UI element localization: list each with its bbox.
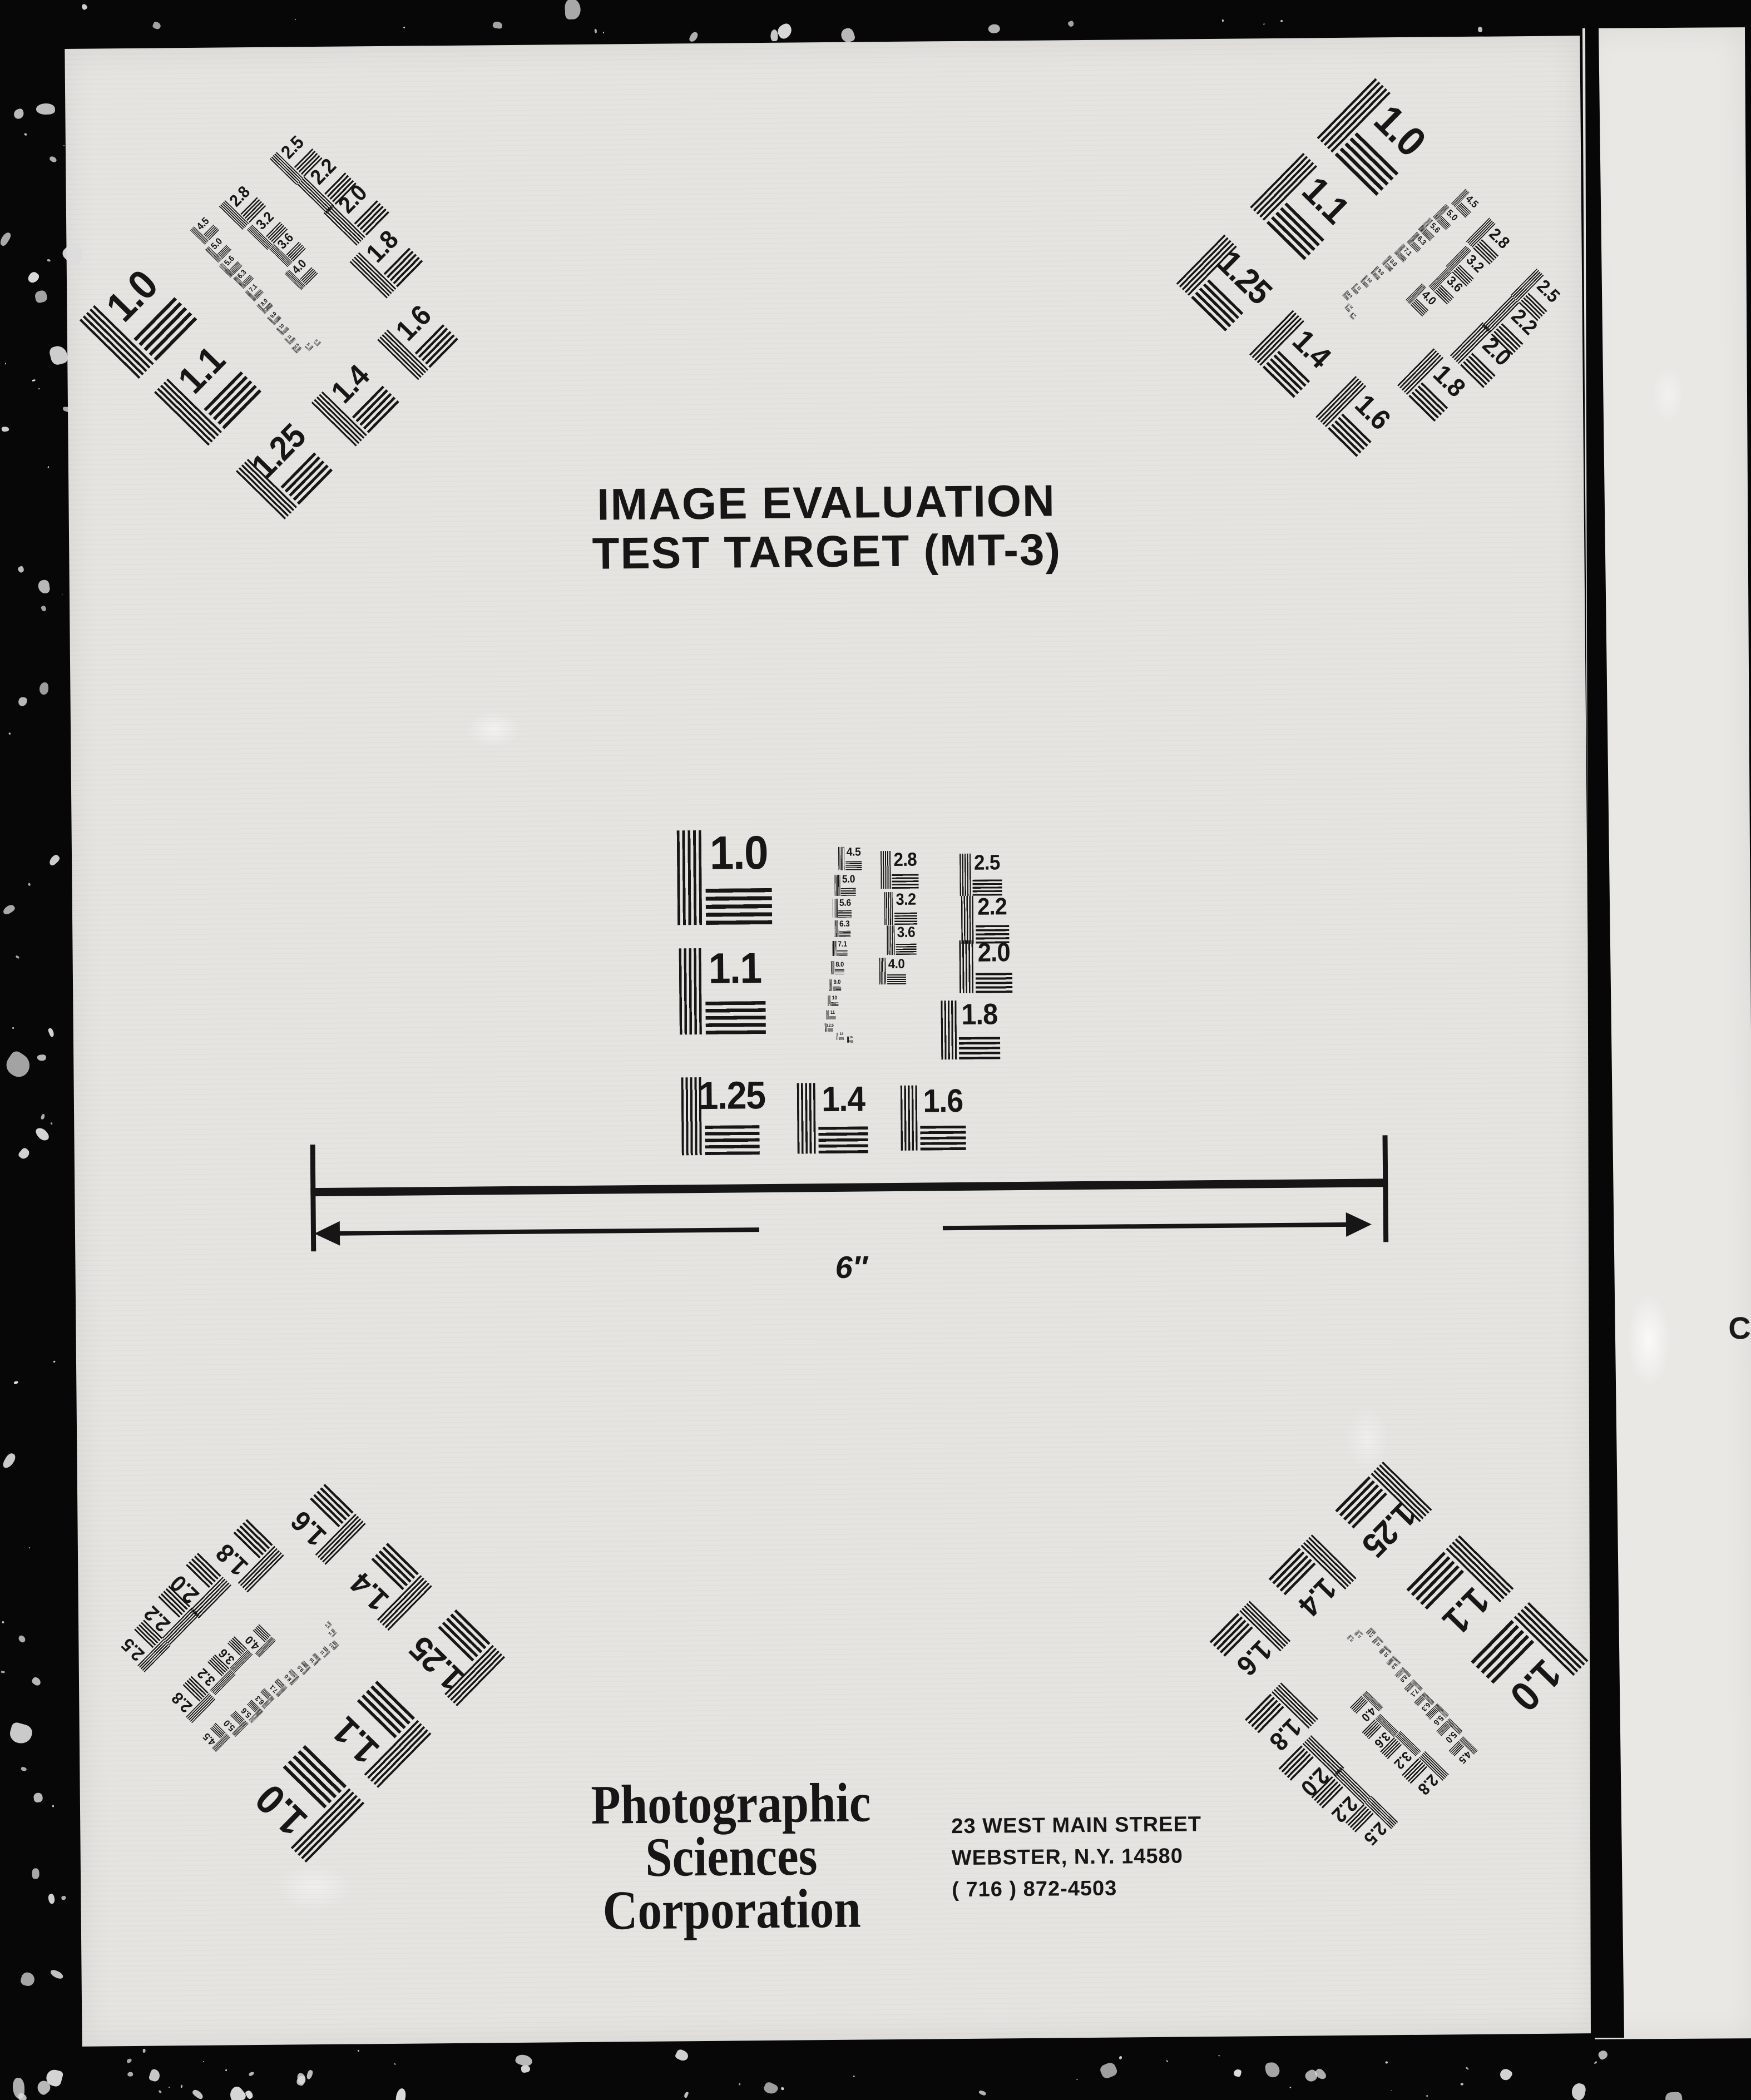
resolution-number: 5.0 — [841, 874, 855, 887]
resolution-element-11: 11 — [1372, 1636, 1383, 1648]
vertical-bars-icon — [797, 1083, 816, 1153]
resolution-number: 9.0 — [833, 979, 841, 986]
horizontal-bars-icon — [975, 973, 1012, 993]
vertical-bars-icon — [834, 920, 838, 937]
horizontal-bars-icon — [920, 1125, 966, 1150]
resolution-element-11: 11 — [284, 333, 296, 345]
dust-speck — [47, 1028, 55, 1038]
dust-speck — [191, 2088, 205, 2100]
dust-speck — [565, 0, 581, 19]
dust-speck — [296, 2074, 306, 2087]
dust-speck — [48, 344, 69, 366]
resolution-element-7.1: 7.1 — [269, 1678, 288, 1697]
dust-speck — [38, 388, 39, 389]
dust-speck — [1099, 2061, 1118, 2080]
resolution-element-10: 10 — [308, 1653, 321, 1666]
resolution-chart-top-right: 1.01.11.251.41.61.82.02.22.52.83.23.64.0… — [1171, 77, 1586, 492]
resolution-element-7.1: 7.1 — [1404, 1680, 1423, 1698]
vertical-bars-icon — [679, 948, 703, 1034]
resolution-number: 1.1 — [705, 946, 764, 998]
dust-speck — [18, 697, 27, 706]
resolution-element-11: 11 — [1351, 283, 1362, 295]
resolution-element-8.0: 8.0 — [283, 1669, 300, 1686]
dust-speck — [780, 2087, 784, 2091]
resolution-element-12.5: 12.5 — [1342, 290, 1353, 301]
dust-speck — [148, 2069, 161, 2083]
dust-speck — [47, 466, 50, 469]
dust-speck — [1, 1671, 6, 1674]
dust-speck — [8, 1721, 33, 1746]
dust-speck — [8, 732, 11, 735]
horizontal-bars-icon — [706, 888, 773, 925]
dust-speck — [248, 2071, 255, 2077]
resolution-element-16: 16 — [1349, 313, 1357, 320]
resolution-element-2.2: 2.2 — [961, 895, 1010, 944]
resolution-element-14: 14 — [305, 343, 314, 351]
resolution-element-1.25: 1.25 — [681, 1077, 760, 1155]
resolution-element-16: 16 — [314, 339, 321, 346]
dust-speck — [1221, 19, 1224, 22]
resolution-element-7.1: 7.1 — [245, 283, 264, 302]
dust-speck — [52, 1805, 54, 1807]
resolution-number: 12.5 — [827, 1023, 833, 1028]
dust-speck — [1218, 2055, 1220, 2057]
dust-speck — [5, 363, 6, 365]
resolution-element-3.2: 3.2 — [884, 892, 918, 925]
dust-speck — [689, 31, 700, 43]
resolution-number: 1.4 — [819, 1081, 867, 1124]
dust-speck — [18, 1147, 31, 1161]
resolution-element-1.4: 1.4 — [1249, 310, 1337, 398]
resolution-element-16: 16 — [847, 1037, 853, 1043]
horizontal-bars-icon — [835, 969, 844, 974]
dust-speck — [41, 1114, 45, 1120]
resolution-number: 11 — [829, 1010, 836, 1016]
vertical-bars-icon — [838, 847, 844, 870]
resolution-element-2.5: 2.5 — [959, 853, 1002, 896]
dust-speck — [20, 1972, 36, 1988]
ruler-length-label: 6″ — [759, 1248, 943, 1286]
dust-speck — [13, 2078, 25, 2099]
resolution-element-4.0: 4.0 — [879, 958, 906, 984]
resolution-element-14: 14 — [1344, 303, 1353, 312]
dust-speck — [48, 853, 62, 866]
resolution-number: 2.8 — [892, 850, 918, 873]
resolution-chart-bottom-left: 1.01.11.251.41.61.82.02.22.52.83.23.64.0… — [95, 1449, 511, 1864]
horizontal-bars-icon — [972, 879, 1002, 895]
resolution-element-14: 14 — [837, 1033, 844, 1040]
resolution-element-9.0: 9.0 — [829, 979, 841, 991]
resolution-element-1.0: 1.0 — [247, 1745, 365, 1863]
logo-line-2: Sciences — [576, 1829, 887, 1884]
dust-speck — [32, 379, 36, 382]
dust-speck — [226, 2084, 248, 2100]
adjacent-page-partial-text: Ca — [1728, 1310, 1751, 1346]
dust-speck — [492, 21, 502, 29]
dust-speck — [31, 1676, 42, 1687]
resolution-element-1.1: 1.1 — [679, 948, 766, 1034]
dust-speck — [521, 2064, 530, 2073]
dust-speck — [603, 32, 604, 33]
vertical-bars-icon — [837, 1033, 838, 1040]
dust-speck — [1303, 2068, 1319, 2084]
resolution-number: 10 — [831, 995, 838, 1002]
dust-speck — [47, 259, 51, 261]
dust-speck — [47, 1894, 56, 1905]
vertical-bars-icon — [901, 1086, 918, 1151]
dust-speck — [33, 1792, 43, 1803]
resolution-element-1.6: 1.6 — [1315, 376, 1397, 457]
vertical-bars-icon — [834, 875, 840, 896]
dust-speck — [1498, 2067, 1513, 2082]
resolution-number: 5.6 — [838, 898, 851, 910]
dust-speck — [126, 2058, 132, 2063]
company-address: 23 WEST MAIN STREET WEBSTER, N.Y. 14580 … — [951, 1808, 1263, 1906]
resolution-element-4.5: 4.5 — [838, 847, 862, 870]
dust-speck — [13, 108, 25, 120]
resolution-element-10: 10 — [276, 323, 289, 336]
dust-speck — [12, 1027, 14, 1029]
resolution-number: 14 — [839, 1033, 844, 1037]
dust-speck — [1477, 27, 1482, 33]
resolution-number: 8.0 — [835, 960, 844, 969]
dust-speck — [514, 2053, 533, 2068]
dust-speck — [40, 605, 47, 612]
resolution-number: 2.2 — [976, 894, 1008, 923]
resolution-element-3.6: 3.6 — [887, 925, 916, 955]
dust-speck — [29, 1547, 31, 1549]
resolution-element-9.0: 9.0 — [267, 311, 281, 325]
dust-speck — [1460, 2082, 1464, 2086]
horizontal-bars-icon — [887, 974, 906, 985]
ruler-arrowhead-left-icon — [314, 1221, 340, 1246]
horizontal-bars-icon — [829, 1016, 836, 1019]
horizontal-bars-icon — [894, 912, 917, 925]
vertical-bars-icon — [829, 979, 833, 991]
horizontal-bars-icon — [841, 888, 856, 896]
resolution-number: 16 — [849, 1036, 853, 1040]
resolution-number: 2.0 — [976, 939, 1012, 971]
dust-speck — [674, 2048, 690, 2063]
resolution-number: 3.2 — [894, 891, 917, 911]
dust-speck — [2, 1452, 17, 1470]
resolution-element-1.6: 1.6 — [285, 1484, 366, 1565]
resolution-number: 3.6 — [896, 925, 916, 943]
dust-speck — [49, 1969, 64, 1980]
resolution-element-1.0: 1.0 — [677, 830, 772, 925]
dust-speck — [1289, 2087, 1292, 2088]
resolution-number: 1.25 — [705, 1075, 759, 1122]
dust-speck — [1391, 2090, 1392, 2091]
dust-speck — [61, 1896, 66, 1901]
resolution-element-1.6: 1.6 — [377, 299, 458, 380]
resolution-number: 1.6 — [921, 1084, 965, 1123]
resolution-element-9.0: 9.0 — [296, 1661, 311, 1675]
dust-speck — [17, 1635, 27, 1643]
dust-speck — [770, 29, 778, 41]
vertical-bars-icon — [832, 941, 836, 956]
resolution-element-1.6: 1.6 — [1210, 1601, 1291, 1682]
vertical-bars-icon — [881, 851, 891, 889]
horizontal-bars-icon — [849, 1040, 853, 1042]
vertical-bars-icon — [879, 958, 887, 984]
resolution-element-9.0: 9.0 — [1386, 1656, 1401, 1670]
resolution-element-1.25: 1.25 — [1176, 235, 1273, 331]
horizontal-bars-icon — [833, 987, 841, 991]
dust-speck — [81, 3, 88, 11]
horizontal-bars-icon — [827, 1028, 833, 1032]
page-title: IMAGE EVALUATION TEST TARGET (MT-3) — [68, 472, 1584, 583]
dust-speck — [2, 903, 16, 917]
resolution-element-7.1: 7.1 — [832, 941, 847, 956]
horizontal-bars-icon — [837, 950, 848, 955]
address-street: 23 WEST MAIN STREET — [951, 1808, 1263, 1843]
vertical-bars-icon — [884, 892, 893, 925]
dust-speck — [28, 883, 31, 886]
dust-speck — [158, 2089, 162, 2093]
horizontal-bars-icon — [838, 910, 852, 918]
resolution-element-10: 10 — [1378, 1645, 1392, 1658]
dust-speck — [169, 2087, 170, 2088]
resolution-element-6.3: 6.3 — [834, 920, 850, 937]
dust-speck — [1233, 2068, 1242, 2077]
resolution-element-14: 14 — [1354, 1630, 1363, 1638]
resolution-element-1.1: 1.1 — [1250, 153, 1357, 260]
dust-speck — [684, 2092, 689, 2099]
resolution-number: 1.0 — [706, 828, 771, 885]
vertical-bars-icon — [959, 940, 973, 993]
resolution-element-12.5: 12.5 — [825, 1023, 833, 1032]
resolution-element-5.0: 5.0 — [834, 875, 855, 896]
vertical-bars-icon — [828, 995, 830, 1006]
resolution-element-1.4: 1.4 — [311, 359, 399, 447]
horizontal-bars-icon — [845, 861, 862, 870]
resolution-element-1.1: 1.1 — [1406, 1536, 1513, 1643]
dust-speck — [840, 27, 856, 44]
dust-speck — [988, 23, 1001, 34]
resolution-element-12.5: 12.5 — [291, 343, 302, 354]
test-target-page: 1.01.11.251.41.61.82.02.22.52.83.23.64.0… — [65, 36, 1597, 2047]
resolution-element-5.6: 5.6 — [833, 899, 852, 918]
resolution-number: 7.1 — [837, 940, 848, 949]
resolution-chart-top-left: 1.01.11.251.41.61.82.02.22.52.83.23.64.0… — [78, 110, 493, 525]
resolution-element-2.8: 2.8 — [881, 851, 919, 889]
dust-speck — [1264, 2062, 1280, 2078]
vertical-bars-icon — [827, 1010, 829, 1019]
resolution-element-11: 11 — [827, 1010, 836, 1019]
microfilm-frame: Ca 1.01.11.251.41.61.82.02.22.52.83.23.6… — [0, 0, 1751, 2100]
dust-speck — [1067, 20, 1074, 27]
resolution-number: 4.0 — [888, 957, 906, 973]
dust-speck — [44, 2068, 64, 2087]
dust-speck — [358, 2050, 359, 2052]
dust-speck — [1314, 2067, 1328, 2081]
resolution-element-11: 11 — [319, 1646, 330, 1658]
dust-speck — [394, 2088, 408, 2100]
dust-speck — [17, 2092, 28, 2100]
resolution-element-8.0: 8.0 — [256, 298, 273, 314]
dust-speck — [245, 2089, 254, 2099]
dust-speck — [1076, 2078, 1077, 2080]
dust-speck — [34, 289, 48, 303]
dust-speck — [763, 2081, 779, 2097]
dust-speck — [24, 132, 28, 136]
resolution-chart-center: 1.01.11.251.41.61.82.02.22.52.83.23.64.0… — [677, 825, 1013, 1162]
dust-speck — [63, 145, 64, 147]
dust-speck — [37, 1054, 46, 1061]
dust-speck — [1465, 2067, 1469, 2070]
dust-speck — [49, 155, 58, 163]
resolution-element-1.1: 1.1 — [324, 1681, 432, 1788]
dust-speck — [21, 1766, 27, 1772]
resolution-element-12.5: 12.5 — [329, 1640, 339, 1651]
ruler-tick-right — [1383, 1135, 1389, 1242]
ruler-arrowhead-right-icon — [1346, 1212, 1372, 1237]
resolution-element-1.4: 1.4 — [1269, 1534, 1357, 1622]
dust-speck — [0, 231, 12, 247]
resolution-element-14: 14 — [328, 1628, 337, 1637]
dust-speck — [403, 26, 405, 28]
horizontal-bars-icon — [831, 1002, 838, 1006]
resolution-element-1.4: 1.4 — [797, 1082, 868, 1153]
dust-speck — [152, 21, 162, 31]
dust-speck — [26, 270, 40, 285]
dust-speck — [225, 2069, 227, 2071]
horizontal-bars-icon — [818, 1126, 868, 1153]
resolution-number: 4.5 — [845, 846, 862, 860]
dust-speck — [32, 1868, 39, 1879]
logo-line-1: Photographic — [576, 1776, 886, 1831]
dust-speck — [62, 593, 63, 595]
dust-speck — [13, 1380, 19, 1385]
resolution-element-2.0: 2.0 — [959, 940, 1012, 993]
dust-speck — [2, 1049, 34, 1081]
dust-speck — [1119, 2056, 1122, 2059]
dust-speck — [53, 1360, 56, 1363]
horizontal-bars-icon — [892, 874, 919, 889]
resolution-element-1.0: 1.0 — [1317, 78, 1435, 196]
dust-speck — [853, 2076, 855, 2077]
resolution-element-8.0: 8.0 — [1394, 1667, 1411, 1683]
dust-speck — [34, 1125, 51, 1143]
dust-speck — [295, 19, 296, 21]
resolution-element-1.25: 1.25 — [408, 1609, 505, 1706]
dust-speck — [180, 2085, 183, 2089]
dust-speck — [202, 2061, 204, 2063]
resolution-element-16: 16 — [1347, 1635, 1354, 1642]
dust-speck — [1570, 2082, 1587, 2100]
horizontal-bars-icon — [976, 925, 1009, 944]
vertical-bars-icon — [959, 854, 971, 896]
vertical-bars-icon — [831, 961, 834, 974]
horizontal-bars-icon — [705, 1001, 766, 1034]
dust-speck — [1, 1621, 4, 1624]
resolution-element-1.25: 1.25 — [1335, 1462, 1432, 1558]
ruler-arrow-line-left — [338, 1227, 759, 1236]
dust-speck — [1166, 2060, 1169, 2063]
horizontal-bars-icon — [839, 930, 850, 937]
dust-speck — [143, 2049, 146, 2053]
resolution-element-10: 10 — [828, 995, 838, 1006]
resolution-element-12.5: 12.5 — [1366, 1627, 1377, 1638]
dust-speck — [51, 1122, 53, 1125]
dust-speck — [39, 682, 49, 695]
vertical-bars-icon — [677, 830, 703, 925]
dust-speck — [594, 28, 597, 33]
vertical-bars-icon — [941, 1001, 956, 1059]
resolution-number: 6.3 — [839, 920, 850, 930]
dust-speck — [36, 103, 56, 115]
ruler-arrow-line-right — [943, 1222, 1349, 1230]
resolution-element-9.0: 9.0 — [1371, 266, 1385, 280]
dust-speck — [18, 566, 26, 573]
dust-speck — [775, 22, 795, 41]
vertical-bars-icon — [833, 899, 838, 918]
resolution-element-10: 10 — [1360, 275, 1373, 288]
resolution-element-1.8: 1.8 — [941, 1000, 1000, 1059]
dust-speck — [394, 2063, 395, 2065]
resolution-element-1.6: 1.6 — [901, 1085, 966, 1151]
resolution-element-1.0: 1.0 — [1471, 1602, 1589, 1720]
horizontal-bars-icon — [896, 944, 916, 955]
dust-speck — [16, 955, 20, 959]
dust-speck — [38, 579, 51, 594]
dust-speck — [34, 2078, 52, 2096]
dust-speck — [1665, 2092, 1683, 2100]
dust-speck — [127, 2072, 133, 2077]
dust-speck — [1385, 2062, 1388, 2064]
resolution-element-1.0: 1.0 — [80, 261, 197, 379]
address-city: WEBSTER, N.Y. 14580 — [952, 1840, 1263, 1874]
logo-line-3: Corporation — [577, 1881, 887, 1937]
dust-speck — [296, 2072, 307, 2085]
dust-speck — [1594, 2061, 1597, 2064]
dust-speck — [1597, 2049, 1609, 2061]
company-logo: Photographic Sciences Corporation — [576, 1776, 887, 1937]
vertical-bars-icon — [961, 896, 974, 944]
vertical-bars-icon — [887, 925, 894, 955]
horizontal-bars-icon — [705, 1125, 759, 1155]
dust-speck — [305, 2069, 313, 2080]
address-phone: ( 716 ) 872-4503 — [952, 1871, 1263, 1906]
resolution-number: 1.8 — [959, 999, 1000, 1034]
dust-speck — [1263, 23, 1264, 26]
dust-speck — [978, 2090, 986, 2096]
horizontal-bars-icon — [959, 1037, 1001, 1059]
ruler-bar — [310, 1178, 1388, 1196]
dust-speck — [1, 425, 9, 432]
resolution-element-8.0: 8.0 — [1382, 255, 1398, 272]
dust-speck — [241, 2096, 243, 2098]
horizontal-bars-icon — [839, 1037, 844, 1040]
resolution-element-16: 16 — [324, 1621, 332, 1628]
resolution-element-1.1: 1.1 — [154, 338, 261, 445]
dust-speck — [14, 1740, 16, 1742]
dust-speck — [739, 2083, 740, 2085]
resolution-element-8.0: 8.0 — [831, 961, 844, 974]
dust-speck — [1280, 19, 1283, 22]
resolution-element-1.4: 1.4 — [344, 1543, 432, 1631]
resolution-element-7.1: 7.1 — [1394, 244, 1413, 262]
resolution-number: 2.5 — [973, 853, 1002, 878]
dust-speck — [1426, 2095, 1428, 2097]
